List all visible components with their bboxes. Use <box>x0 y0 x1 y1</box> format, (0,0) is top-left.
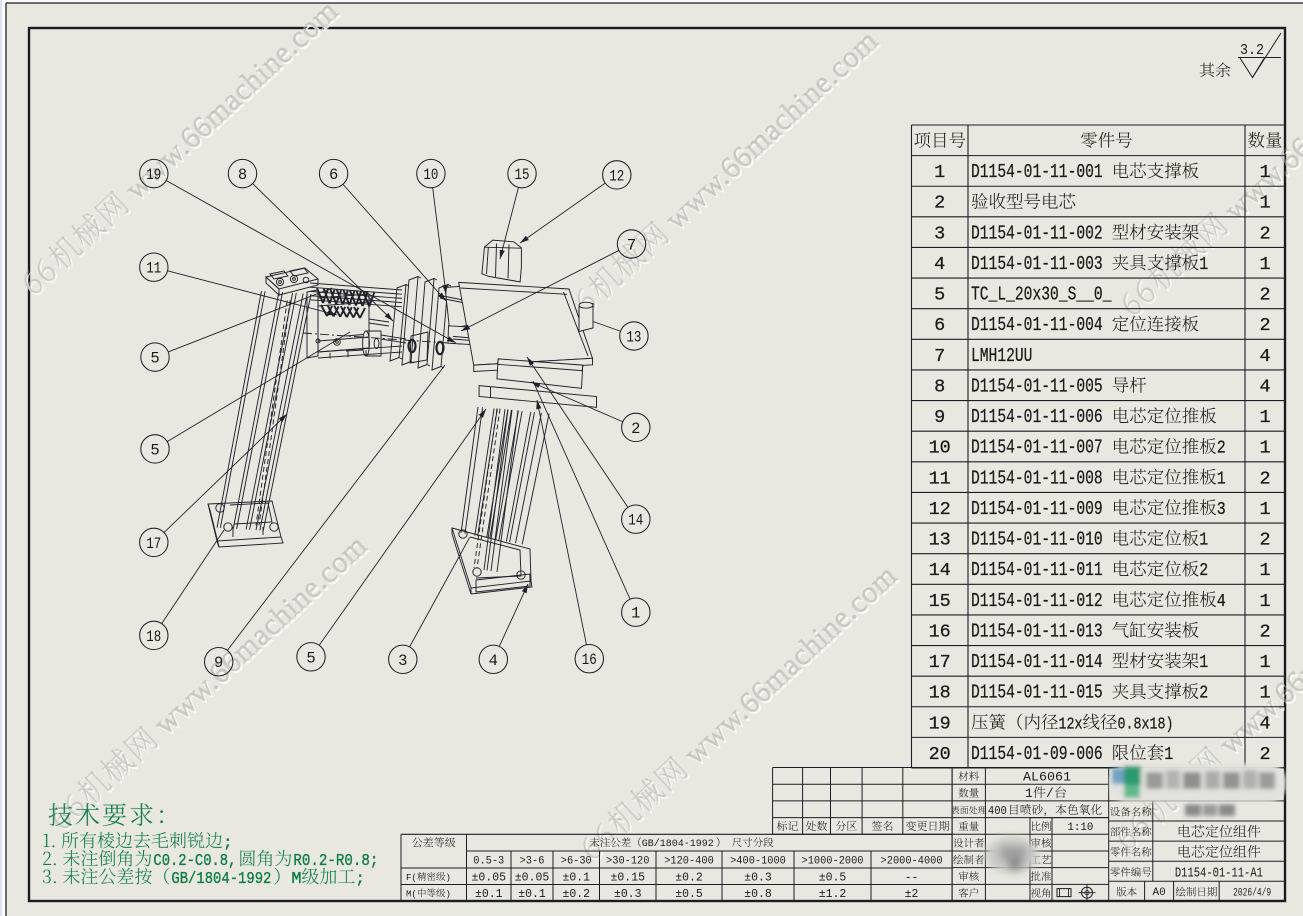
svg-text:9: 9 <box>214 654 223 672</box>
svg-text:D1154-01-11-015: D1154-01-11-015 <box>971 682 1103 704</box>
svg-text:): ) <box>446 890 451 900</box>
svg-text:;: ; <box>223 834 233 852</box>
svg-text:±0.2: ±0.2 <box>675 872 703 885</box>
svg-text:1: 1 <box>1199 653 1208 673</box>
svg-text:15: 15 <box>929 591 951 612</box>
svg-text:>1000-2000: >1000-2000 <box>802 856 864 868</box>
svg-text:M: M <box>291 870 301 889</box>
svg-text:D1154-01-11-005: D1154-01-11-005 <box>971 375 1103 397</box>
svg-text:;: ; <box>355 870 365 888</box>
svg-text:±0.8: ±0.8 <box>744 888 772 901</box>
svg-text:1: 1 <box>1199 531 1208 551</box>
svg-text:D1154-01-11-011: D1154-01-11-011 <box>971 559 1103 581</box>
svg-text:5: 5 <box>306 649 315 667</box>
svg-text:>400-1000: >400-1000 <box>730 856 786 868</box>
svg-text:GB/1804-1992: GB/1804-1992 <box>171 870 271 889</box>
svg-text:2: 2 <box>1217 439 1226 459</box>
svg-text:--: -- <box>905 872 919 885</box>
svg-text:>120-400: >120-400 <box>664 856 714 868</box>
svg-text:10: 10 <box>423 166 438 184</box>
svg-text:D1154-01-11-001: D1154-01-11-001 <box>971 161 1103 183</box>
svg-text:2: 2 <box>1259 315 1270 336</box>
svg-text:6: 6 <box>934 315 945 336</box>
svg-text:C0.2-C0.8,: C0.2-C0.8, <box>153 852 236 871</box>
svg-text:R0.2-R0.8;: R0.2-R0.8; <box>293 852 378 871</box>
svg-text:2: 2 <box>1259 530 1270 551</box>
svg-text:3.2: 3.2 <box>1240 43 1264 59</box>
svg-text:±0.3: ±0.3 <box>744 872 772 885</box>
svg-text:>2000-4000: >2000-4000 <box>881 856 943 868</box>
svg-text:0.8x18): 0.8x18) <box>1118 715 1174 734</box>
svg-text:D1154-01-11-004: D1154-01-11-004 <box>971 314 1103 336</box>
svg-text:D1154-01-11-009: D1154-01-11-009 <box>971 498 1103 520</box>
svg-text:1: 1 <box>631 605 640 623</box>
svg-text:15: 15 <box>515 166 530 184</box>
svg-text:D1154-01-11-003: D1154-01-11-003 <box>971 253 1103 275</box>
svg-text:±2: ±2 <box>905 888 919 901</box>
svg-text:1: 1 <box>1259 560 1270 581</box>
svg-text:1: 1 <box>934 162 945 183</box>
svg-text:9: 9 <box>934 407 945 428</box>
svg-text:6: 6 <box>329 166 338 184</box>
svg-text:13: 13 <box>626 329 641 347</box>
svg-text:>6-30: >6-30 <box>561 856 592 868</box>
svg-text:D1154-01-11-002: D1154-01-11-002 <box>971 222 1103 244</box>
svg-text:D1154-01-11-006: D1154-01-11-006 <box>971 406 1103 428</box>
svg-text:8: 8 <box>238 166 247 184</box>
svg-text:2026/4/9: 2026/4/9 <box>1233 888 1271 900</box>
svg-text:13: 13 <box>929 530 951 551</box>
svg-text:1:10: 1:10 <box>1067 822 1093 834</box>
svg-text:1: 1 <box>1025 786 1033 801</box>
svg-text:4: 4 <box>1259 713 1270 734</box>
svg-text:2: 2 <box>1259 223 1270 244</box>
svg-text:±0.15: ±0.15 <box>610 872 645 885</box>
svg-text:4: 4 <box>934 254 945 275</box>
svg-text:14: 14 <box>628 512 643 530</box>
svg-text:2: 2 <box>1259 744 1270 765</box>
svg-text:17: 17 <box>929 652 951 673</box>
svg-text:17: 17 <box>146 535 161 553</box>
svg-text:4: 4 <box>1259 346 1270 367</box>
svg-text:19: 19 <box>929 713 951 734</box>
svg-text:1: 1 <box>1259 499 1270 520</box>
svg-text:D1154-01-11-010: D1154-01-11-010 <box>971 529 1103 551</box>
svg-text:>30-120: >30-120 <box>606 856 649 868</box>
svg-text:±0.5: ±0.5 <box>819 872 847 885</box>
svg-text:11: 11 <box>929 468 951 489</box>
svg-text:12: 12 <box>929 499 951 520</box>
svg-text:TC_L_20x30_S__0_: TC_L_20x30_S__0_ <box>971 284 1112 306</box>
svg-text:1: 1 <box>1217 469 1226 489</box>
svg-text:D1154-01-11-007: D1154-01-11-007 <box>971 437 1103 459</box>
svg-text:8: 8 <box>934 376 945 397</box>
svg-text:12x: 12x <box>1059 715 1083 734</box>
svg-text:M(: M( <box>406 890 417 900</box>
svg-text:D1154-01-11-A1: D1154-01-11-A1 <box>1175 866 1263 881</box>
svg-text:4: 4 <box>1217 592 1226 612</box>
svg-text:LMH12UU: LMH12UU <box>971 345 1032 367</box>
svg-text:AL6061: AL6061 <box>1023 769 1071 784</box>
svg-text:D1154-01-11-013: D1154-01-11-013 <box>971 620 1103 642</box>
svg-text:±0.3: ±0.3 <box>614 888 642 901</box>
svg-text:3: 3 <box>398 652 407 670</box>
svg-text:14: 14 <box>929 560 951 581</box>
svg-text:D1154-01-09-006: D1154-01-09-006 <box>971 743 1103 765</box>
svg-text:400: 400 <box>988 804 1007 818</box>
svg-text:1: 1 <box>1259 254 1270 275</box>
svg-text:4: 4 <box>489 652 498 670</box>
svg-text:7: 7 <box>934 346 945 367</box>
svg-text:0.5-3: 0.5-3 <box>473 856 504 868</box>
svg-text:5: 5 <box>934 285 945 306</box>
svg-text:16: 16 <box>929 621 951 642</box>
svg-text:GB/1804-1992: GB/1804-1992 <box>642 838 714 850</box>
svg-text:2: 2 <box>934 193 945 214</box>
svg-text:1: 1 <box>1259 438 1270 459</box>
svg-text:>3-6: >3-6 <box>520 856 545 868</box>
svg-text:1: 1 <box>1259 162 1270 183</box>
svg-text:2: 2 <box>1259 621 1270 642</box>
svg-text:1: 1 <box>1164 745 1173 765</box>
svg-text:18: 18 <box>146 628 161 646</box>
svg-text:D1154-01-11-014: D1154-01-11-014 <box>971 651 1103 673</box>
svg-text:2: 2 <box>1259 285 1270 306</box>
svg-text:A0: A0 <box>1152 887 1165 899</box>
svg-text:3: 3 <box>934 223 945 244</box>
svg-text:/: / <box>1046 786 1054 801</box>
svg-text:18: 18 <box>929 683 951 704</box>
svg-text:20: 20 <box>929 744 951 765</box>
svg-text:19: 19 <box>146 166 161 184</box>
svg-text:7: 7 <box>627 237 636 255</box>
svg-text:1: 1 <box>1259 652 1270 673</box>
svg-text:±0.2: ±0.2 <box>562 888 590 901</box>
svg-text:±0.1: ±0.1 <box>475 888 503 901</box>
svg-text:D1154-01-11-008: D1154-01-11-008 <box>971 467 1103 489</box>
svg-text:3: 3 <box>1217 500 1226 520</box>
svg-text:1: 1 <box>1259 193 1270 214</box>
svg-text:D1154-01-11-012: D1154-01-11-012 <box>971 590 1103 612</box>
svg-text:F(: F( <box>406 873 417 883</box>
svg-text:2: 2 <box>1199 684 1208 704</box>
svg-text:2: 2 <box>631 420 640 438</box>
svg-text:±0.1: ±0.1 <box>562 872 590 885</box>
svg-text:16: 16 <box>582 651 597 669</box>
svg-text:11: 11 <box>146 260 161 278</box>
svg-text:12: 12 <box>609 167 624 185</box>
svg-text:10: 10 <box>929 438 951 459</box>
svg-text:±0.1: ±0.1 <box>518 888 546 901</box>
svg-text:±0.5: ±0.5 <box>675 888 703 901</box>
svg-text:4: 4 <box>1259 376 1270 397</box>
svg-text:): ) <box>446 873 451 883</box>
svg-text:1: 1 <box>1259 591 1270 612</box>
svg-text:1: 1 <box>1259 407 1270 428</box>
svg-text:5: 5 <box>150 441 159 459</box>
svg-text:±1.2: ±1.2 <box>819 888 847 901</box>
svg-text:±0.05: ±0.05 <box>515 872 550 885</box>
svg-text:2: 2 <box>1199 561 1208 581</box>
svg-text:1: 1 <box>1259 683 1270 704</box>
svg-text:5: 5 <box>150 350 159 368</box>
svg-text:2: 2 <box>1259 468 1270 489</box>
svg-text:1: 1 <box>1199 255 1208 275</box>
svg-text:±0.05: ±0.05 <box>471 872 506 885</box>
